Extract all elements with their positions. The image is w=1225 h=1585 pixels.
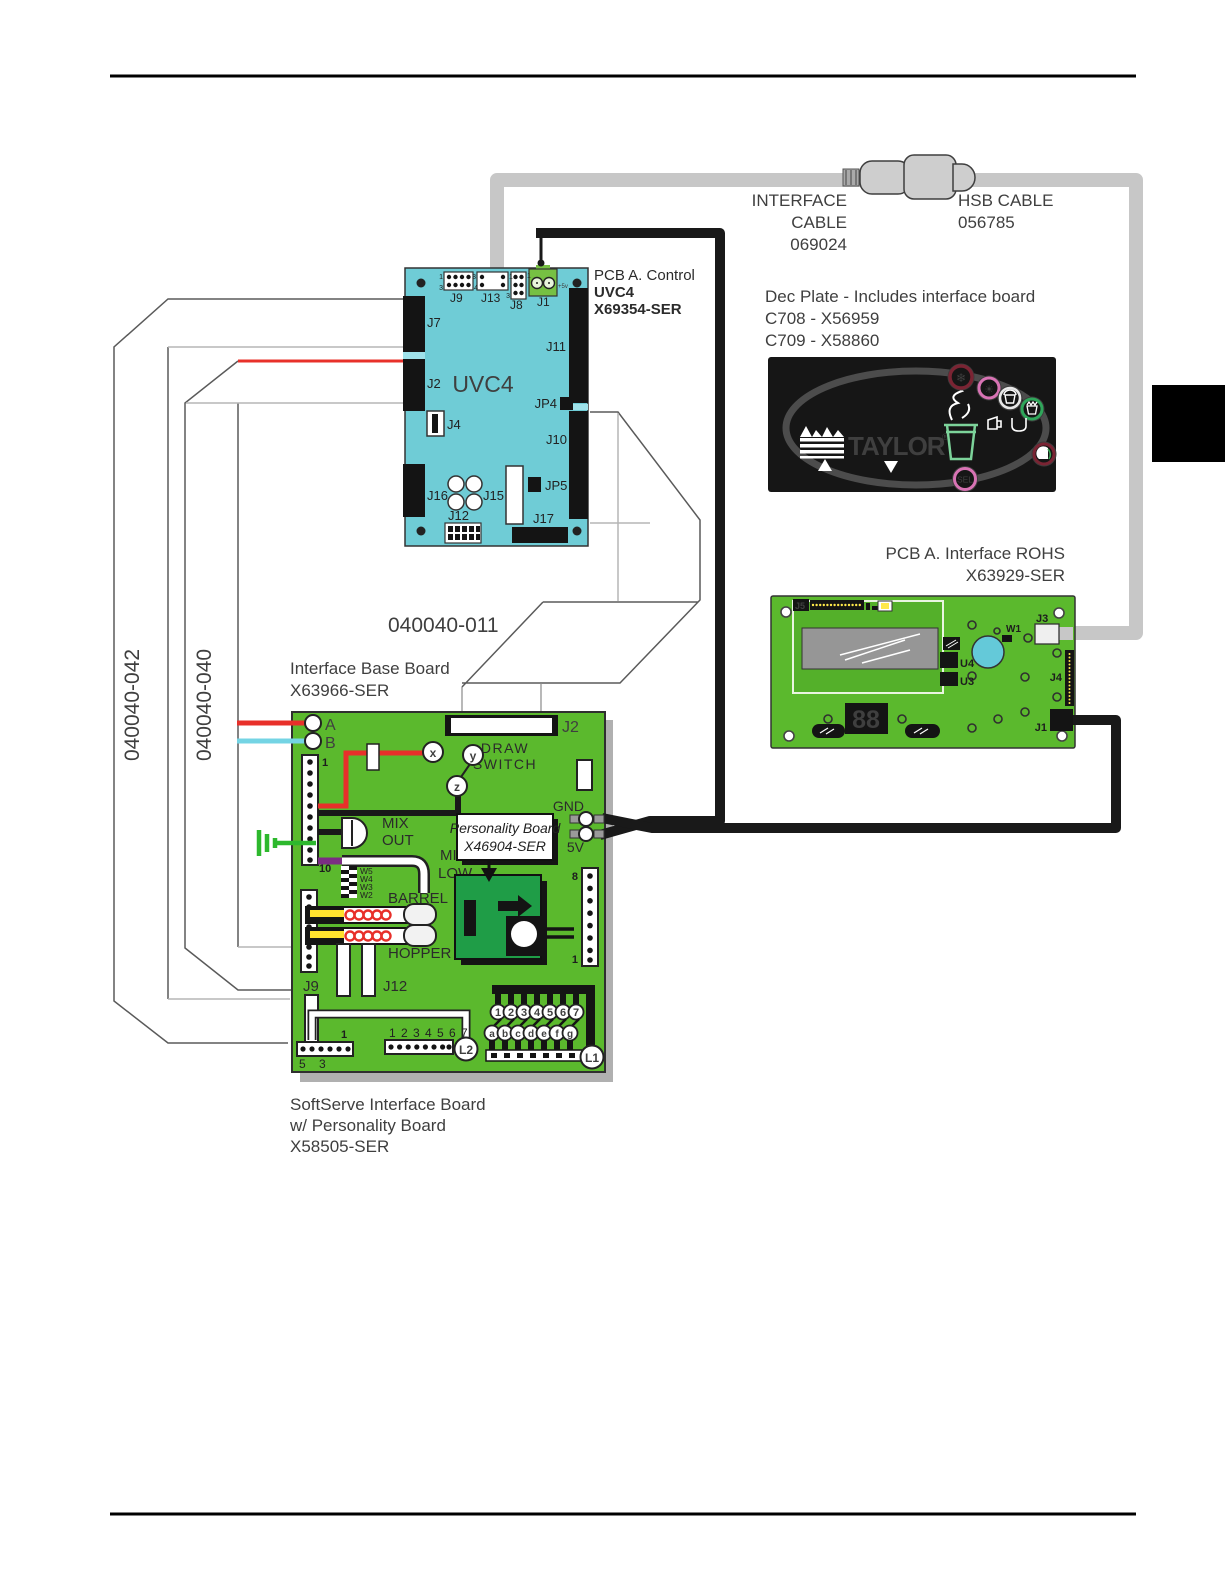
- smd-part: [872, 606, 878, 610]
- segment-letter: a: [489, 1029, 495, 1040]
- node-x-label: x: [430, 746, 437, 760]
- terminal-b: [305, 733, 321, 749]
- rohs-board: PCB A. Interface ROHS X63929-SER J5 W1: [771, 544, 1075, 748]
- mount-hole: [784, 731, 794, 741]
- uvc4-j9-label: J9: [450, 291, 463, 305]
- uvc4-jp5-jumper: [528, 477, 541, 492]
- l1-node-label: L1: [585, 1051, 599, 1065]
- pin5-label: 5: [299, 1057, 306, 1071]
- uvc4-j10-label: J10: [546, 432, 567, 447]
- uvc4-j10-connector: [569, 411, 588, 519]
- led-lens: [881, 603, 889, 609]
- base-title-2: X63966-SER: [290, 681, 389, 700]
- harness-011-label: 040040-011: [388, 614, 499, 637]
- crown-stripe: [800, 456, 844, 459]
- base-j9-label: J9: [303, 978, 319, 995]
- j9-pin3: 3: [439, 285, 443, 292]
- interface-cable-label-3: 069024: [790, 235, 847, 254]
- segment-digit: 6: [560, 1007, 566, 1019]
- rohs-j4-pins: [1069, 653, 1071, 704]
- uvc4-title-3: X69354-SER: [594, 301, 682, 318]
- pin1-label: 1: [322, 757, 328, 769]
- personality-label-2: X46904-SER: [463, 838, 546, 854]
- rohs-j5-label: J5: [795, 601, 805, 611]
- node-y-label: y: [470, 749, 477, 763]
- dec-plate: Dec Plate - Includes interface board C70…: [765, 287, 1057, 492]
- rohs-title-2: X63929-SER: [966, 566, 1065, 585]
- uvc4-j7-connector: [403, 296, 425, 352]
- mix-out-gate: [342, 818, 367, 848]
- segment-letter: b: [502, 1029, 508, 1040]
- mount-hole: [573, 279, 582, 288]
- base-j12-label: J12: [383, 978, 407, 995]
- segment-letter: g: [567, 1029, 573, 1040]
- personality-buzzer: [511, 921, 537, 947]
- bottom-pin1-label: 1: [341, 1029, 347, 1041]
- rohs-j3-connector: [1035, 624, 1059, 644]
- mix-label: MIX: [382, 815, 409, 832]
- mount-hole: [417, 527, 426, 536]
- rohs-j4-label: J4: [1050, 672, 1063, 684]
- pin8-label: 8: [572, 871, 578, 883]
- mount-hole: [1057, 731, 1067, 741]
- hsb-cable-label-1: HSB CABLE: [958, 191, 1053, 210]
- terminal-cap: [594, 815, 604, 823]
- relay-pad: [466, 476, 482, 492]
- screw-dot: [536, 282, 538, 284]
- uvc4-jp4-jumper: [560, 397, 573, 410]
- crown-stripe: [800, 450, 844, 454]
- rohs-u4-chip: [940, 652, 958, 668]
- uvc4-j15-label: J15: [483, 488, 504, 503]
- l2-node-label: L2: [459, 1043, 473, 1057]
- terminal-cap: [594, 830, 604, 838]
- j13-pin3: 3: [472, 274, 476, 281]
- screw-dot: [548, 282, 550, 284]
- edge-connector: [577, 760, 592, 790]
- resistor: [905, 724, 940, 738]
- cup-button: [1022, 399, 1042, 419]
- segment-digit: 7: [573, 1007, 579, 1019]
- uvc4-j7-label: J7: [427, 315, 441, 330]
- rohs-j1-label: J1: [1035, 722, 1047, 734]
- rohs-u3-chip: [940, 672, 958, 686]
- connector-body-left: [860, 161, 910, 194]
- sun-icon: ☀: [984, 384, 994, 396]
- gnd-label: GND: [553, 798, 584, 814]
- display-digits: 88: [852, 706, 880, 734]
- uvc4-j1-label: J1: [537, 295, 550, 309]
- harness-inner-label: 040040-040: [193, 649, 216, 761]
- uvc4-j12-label: J12: [448, 508, 469, 523]
- uvc4-j17-label: J17: [533, 511, 554, 526]
- uvc4-j9-header: [444, 272, 473, 290]
- smd-part: [866, 603, 870, 610]
- node-z-label: z: [454, 780, 460, 794]
- draw-switch-connector: [451, 718, 552, 733]
- terminal-a: [305, 715, 321, 731]
- j9-pin1: 1: [439, 274, 443, 281]
- base-title-1: Interface Base Board: [290, 659, 450, 678]
- connector-tip: [953, 164, 975, 191]
- uvc4-notch: [403, 352, 425, 359]
- barrel-thermistor: [305, 904, 436, 925]
- uvc4-j16-connector: [403, 464, 425, 517]
- uvc4-jp5-label: JP5: [545, 478, 567, 493]
- rohs-j3-stub: [1059, 627, 1073, 640]
- segment-digit: 5: [547, 1007, 553, 1019]
- l2-pin-row-label: 1 2 3 4 5 6 7: [389, 1026, 469, 1040]
- rohs-u4-label: U4: [960, 658, 975, 670]
- uvc4-j17-connector: [512, 527, 568, 543]
- mount-hole: [1054, 608, 1064, 618]
- gnd-terminal: [579, 812, 593, 826]
- j1-plus5v: +5v: [558, 284, 568, 290]
- chapter-tab: [1152, 385, 1225, 462]
- rohs-w1-label: W1: [1006, 624, 1021, 635]
- relay-pad: [448, 476, 464, 492]
- connector-body-right: [904, 155, 956, 199]
- mix-button: [1000, 388, 1020, 408]
- segment-digit: 2: [508, 1007, 514, 1019]
- rohs-title-1: PCB A. Interface ROHS: [885, 544, 1065, 563]
- uvc4-j13-header: [477, 272, 508, 290]
- uvc4-j13-label: J13: [481, 291, 501, 305]
- uvc4-j8-label: J8: [510, 298, 523, 312]
- pin3-label: 3: [319, 1057, 326, 1071]
- personality-label-1: Personality Board: [450, 820, 562, 836]
- j13-pin1: 1: [509, 274, 513, 281]
- dec-plate-title: Dec Plate - Includes interface board: [765, 287, 1035, 306]
- uvc4-j2-connector: [403, 359, 425, 411]
- rohs-j3-label: J3: [1036, 613, 1048, 625]
- hsb-cable-label-2: 056785: [958, 213, 1015, 232]
- sel-button-label: SEL: [957, 475, 973, 485]
- uvc4-jp4-label: JP4: [535, 396, 557, 411]
- j9-pin4: 4: [474, 285, 478, 292]
- uvc4-j4-label: J4: [447, 417, 461, 432]
- jumper-block: [367, 744, 379, 770]
- dec-plate-code2: C709 - X58860: [765, 331, 879, 350]
- uvc4-title-1: PCB A. Control: [594, 267, 695, 284]
- uvc4-j2-label: J2: [427, 376, 441, 391]
- out-label: OUT: [382, 832, 414, 849]
- pin1-right-label: 1: [572, 954, 578, 966]
- uvc4-j8-header: [511, 272, 526, 299]
- hopper-label: HOPPER: [388, 945, 452, 962]
- crown-stripe: [800, 444, 844, 448]
- rohs-w1-jumper: [1002, 635, 1012, 642]
- page-frame: [110, 76, 1225, 1514]
- uvc4-board: 1 3 4 3 1 1 3 +5v J9 J13 J8 J1 J7 J2 J4 …: [403, 265, 695, 546]
- segment-letter: e: [541, 1029, 547, 1040]
- 5v-label: 5V: [567, 839, 585, 855]
- manual-page: 040040-042 040040-040 040040-011 INTERFA…: [0, 0, 1225, 1585]
- pin10-label: 10: [319, 863, 331, 875]
- j8-pin1: 1: [527, 273, 531, 280]
- transistor: [943, 637, 960, 650]
- inline-cable-connector: [843, 155, 975, 199]
- white-connector: [337, 944, 350, 996]
- footer-line-3: X58505-SER: [290, 1137, 389, 1156]
- dec-plate-code1: C708 - X56959: [765, 309, 879, 328]
- interface-cable-label-2: CABLE: [791, 213, 847, 232]
- base-board: Interface Base Board X63966-SER A B J2 D…: [237, 659, 613, 1082]
- taylor-brand-text: TAYLOR: [848, 431, 946, 461]
- buzzer: [972, 636, 1004, 668]
- uvc4-title-2: UVC4: [594, 284, 635, 301]
- uvc4-j15-connector: [506, 466, 523, 524]
- rohs-j1-connector: [1050, 709, 1073, 731]
- draw-label: DRAW: [481, 740, 529, 756]
- base-j2-label: J2: [562, 719, 579, 736]
- segment-letter: d: [528, 1029, 534, 1040]
- segment-digit: 1: [495, 1007, 501, 1019]
- interface-cable-label-1: INTERFACE: [752, 191, 847, 210]
- uvc4-chip-label: UVC4: [452, 371, 514, 397]
- terminal-b-label: B: [325, 735, 336, 752]
- mount-hole: [781, 607, 791, 617]
- uvc4-j11-connector: [569, 288, 588, 403]
- w2-label: W2: [360, 890, 373, 900]
- crown-stripe: [800, 438, 844, 442]
- mount-hole: [573, 527, 582, 536]
- rohs-u3-label: U3: [960, 676, 974, 688]
- harness-outer-label: 040040-042: [121, 649, 144, 761]
- mount-hole: [417, 279, 426, 288]
- white-connector: [362, 944, 375, 996]
- footer-line-1: SoftServe Interface Board: [290, 1095, 486, 1114]
- terminal-a-label: A: [325, 717, 336, 734]
- snowflake-icon: ❄: [956, 371, 966, 385]
- segment-letter: c: [515, 1029, 521, 1040]
- footer-line-2: w/ Personality Board: [289, 1116, 446, 1135]
- hopper-thermistor: [305, 925, 436, 946]
- uvc4-j4-key: [432, 414, 438, 433]
- segment-digit: 4: [534, 1007, 541, 1019]
- segment-digit: 3: [521, 1007, 527, 1019]
- resistor: [812, 724, 845, 738]
- uvc4-j11-label: J11: [546, 339, 566, 354]
- footer-label: SoftServe Interface Board w/ Personality…: [289, 1095, 486, 1156]
- uvc4-j16-label: J16: [427, 488, 448, 503]
- personality-chip: [464, 900, 476, 936]
